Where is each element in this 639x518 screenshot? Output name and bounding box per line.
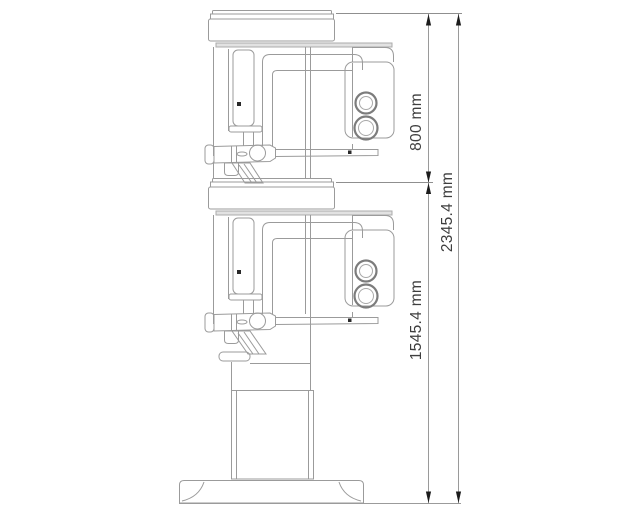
dimension-label-2345: 2345.4 mm bbox=[439, 172, 456, 252]
dimension-lines bbox=[336, 14, 462, 504]
machine-unit-lower bbox=[205, 179, 394, 362]
base-plate bbox=[179, 481, 461, 504]
stand-column bbox=[231, 314, 314, 479]
dimension-diagram-page: 800 mm 1545.4 mm 2345.4 mm bbox=[0, 0, 639, 518]
machine-unit-upper bbox=[205, 11, 394, 184]
dimension-label-1545: 1545.4 mm bbox=[408, 280, 425, 360]
dimension-arrows bbox=[426, 14, 461, 503]
upper-handle-strut bbox=[214, 146, 311, 183]
dimension-label-800: 800 mm bbox=[408, 93, 425, 151]
lower-handle-strut bbox=[219, 331, 266, 361]
xray-unit-dimension-drawing: 800 mm 1545.4 mm 2345.4 mm bbox=[0, 0, 639, 518]
